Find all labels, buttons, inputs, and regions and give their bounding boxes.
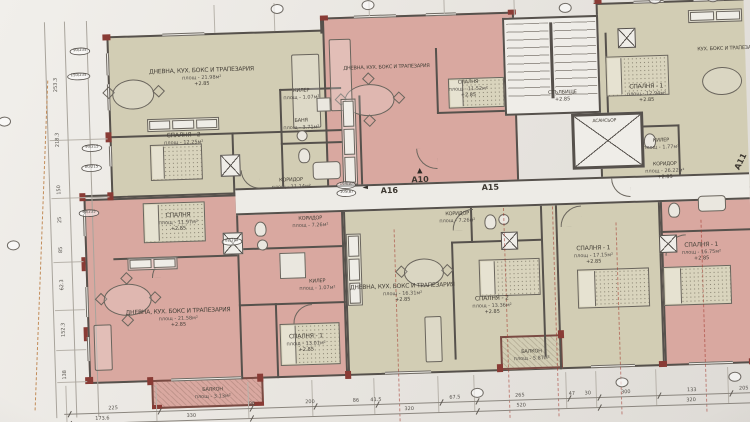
floor-plan-drawing: ДНЕВНА, КУХ. БОКС И ТРАПЕЗАРИЯ площ - 21…	[0, 0, 750, 422]
extension-line	[595, 371, 597, 407]
extension-line	[727, 367, 729, 403]
room-label-corridor-a15: КОРИДОР площ - 7.26м²	[439, 210, 476, 224]
room-label-closet-bc: КИЛЕР площ - 1.07м²	[299, 278, 336, 292]
room-label-elevator: АСАНСЬОР	[592, 118, 616, 125]
dimension-number: 520	[516, 402, 526, 408]
floor-plan-photo: ДНЕВНА, КУХ. БОКС И ТРАПЕЗАРИЯ площ - 21…	[0, 0, 750, 422]
grid-bubble	[728, 372, 741, 382]
door-tag: 105(В)	[336, 189, 356, 197]
window-tag: 90/235	[70, 47, 90, 55]
arrow-up-icon: ▲	[417, 166, 423, 174]
extension-line	[443, 0, 445, 14]
window-tag: 90/235	[79, 209, 99, 217]
grid-bubble	[361, 0, 374, 10]
masonry-accent	[659, 361, 667, 367]
kitchen-counter-icon	[127, 256, 177, 271]
window	[109, 146, 113, 166]
toilet-icon	[484, 214, 496, 229]
apartment-label-a15: А15	[482, 183, 500, 193]
dimension-number: 152.3	[60, 323, 66, 338]
room-label-bedroom1-a15: СПАЛНЯ - 1 площ - 17.15м² +2.85	[574, 244, 614, 266]
window	[591, 364, 635, 368]
stair-flight-left	[506, 22, 550, 99]
window	[385, 370, 431, 374]
extension-line	[593, 0, 594, 3]
vent-shaft	[659, 235, 678, 254]
bed-icon	[663, 265, 732, 306]
dimension-number: 30	[585, 390, 592, 396]
dimension-number: 133	[687, 387, 697, 393]
stair-flight-right	[553, 21, 597, 98]
bathtub-icon	[698, 195, 726, 212]
masonry-accent	[257, 374, 263, 382]
window-tag: 90/215	[82, 144, 102, 152]
apartment-label-a16: А16	[381, 186, 399, 196]
apartment-label-a10: А10	[411, 175, 429, 185]
dimension-number: 200	[305, 399, 315, 405]
extension-line	[213, 5, 215, 33]
dimension-number: 300	[621, 389, 631, 395]
extension-line	[513, 0, 515, 16]
extension-line	[57, 381, 87, 383]
dimension-number: 225	[108, 405, 118, 411]
room-label-living-a15: ДНЕВНА, КУХ. БОКС И ТРАПЕЗАРИЯ площ - 16…	[350, 281, 455, 305]
room-label-closet-tr: КИЛЕР площ - 1.77м²	[643, 137, 680, 151]
sofa-icon	[424, 316, 442, 363]
room-label-bedroom-bl: СПАЛНЯ площ - 11.97м² +2.85	[158, 211, 198, 233]
grid-bubble	[615, 377, 628, 387]
masonry-accent	[81, 257, 85, 271]
room-label-closet-tl: КИЛЕР площ - 1.07м²	[283, 87, 320, 101]
window-tag: 82/202	[222, 238, 242, 246]
kitchen-counter-icon	[147, 117, 219, 132]
room-label-corridor-bc: КОРИДОР площ - 7.26м²	[292, 215, 329, 229]
dimension-number: 41.5	[370, 397, 381, 403]
room-label-main-corridor: КОРИДОР площ - 26.22м² +2.85	[645, 161, 685, 182]
kitchen-counter-icon	[340, 99, 358, 185]
dimension-number: 205	[739, 385, 749, 391]
masonry-accent	[254, 402, 264, 406]
room-label-bedroom-tc: СПАЛНЯ площ - 11.52м² +2.85	[448, 79, 488, 100]
grid-bubble	[0, 116, 11, 126]
vent-shaft	[617, 28, 636, 49]
toilet-icon	[254, 221, 266, 236]
grid-bubble	[270, 4, 283, 14]
extension-line	[565, 372, 567, 408]
dimension-number: 265	[515, 392, 525, 398]
kitchen-counter-icon	[688, 8, 742, 23]
dimension-number: 253.3	[53, 78, 59, 93]
room-label-bath-tl: БАНЯ площ - 3.71м²	[283, 117, 320, 131]
dimension-number: 320	[404, 406, 414, 412]
room-label-balcony-bl: БАЛКОН площ - 3.13м²	[194, 386, 231, 400]
bathtub-icon	[312, 161, 341, 180]
grid-bubble	[471, 388, 484, 398]
room-label-balcony-a15: БАЛКОН площ - 5.87м²	[513, 348, 550, 362]
masonry-accent	[147, 377, 153, 385]
window	[83, 214, 87, 236]
dimension-number: 173.6	[95, 415, 110, 421]
window	[106, 53, 110, 75]
masonry-accent	[558, 330, 564, 338]
window	[689, 361, 733, 365]
masonry-accent	[105, 132, 111, 142]
dimension-number: 25	[57, 217, 63, 224]
masonry-accent	[593, 0, 601, 4]
shower-icon	[279, 252, 306, 279]
sofa-icon	[93, 324, 112, 371]
grid-bubble	[559, 3, 572, 13]
dimension-number: 150	[56, 185, 62, 195]
window-tag: 80/215	[81, 164, 101, 172]
dimension-number: 330	[186, 413, 196, 419]
extension-line	[55, 309, 85, 311]
bed-icon	[479, 258, 541, 297]
dimension-number: 62.3	[59, 279, 65, 290]
arrow-left-icon: ◄	[362, 183, 368, 191]
room-label-living-tl: ДНЕВНА, КУХ. БОКС И ТРАПЕЗАРИЯ площ - 21…	[149, 65, 254, 89]
room-label-bedroom-bc: СПАЛНЯ - 1 площ - 13.01м² +2.85	[286, 332, 326, 354]
toilet-icon	[298, 148, 310, 163]
extension-line	[437, 376, 439, 412]
extension-line	[53, 261, 83, 263]
door-tag: 104(В)	[336, 181, 356, 189]
masonry-accent	[345, 371, 351, 379]
dimension-number: 67.5	[449, 394, 460, 400]
toilet-icon	[668, 202, 680, 217]
room-label-living-bl: ДНЕВНА, КУХ. БОКС И ТРАПЕЗАРИЯ площ - 21…	[126, 306, 231, 330]
grid-bubble	[7, 240, 20, 250]
dimension-number: 86	[353, 398, 360, 404]
vent-shaft	[220, 154, 241, 177]
masonry-accent	[102, 34, 110, 40]
extension-line	[56, 349, 86, 351]
margin-dashed-line	[35, 81, 49, 411]
room-label-bedroom-right: СПАЛНЯ - 1 площ - 16.75м² +2.85	[681, 241, 721, 263]
extension-line	[655, 369, 657, 405]
dimension-number: 320	[686, 397, 696, 403]
masonry-accent	[497, 364, 503, 372]
masonry-accent	[320, 15, 328, 20]
window-tag: 150/235	[67, 72, 90, 80]
dimension-number: 85	[58, 247, 64, 254]
dimension-number: 138	[62, 370, 68, 380]
bed-icon	[577, 267, 650, 308]
room-label-staircase: СТЪЛБИЩЕ +2.85	[548, 89, 577, 103]
bed-icon	[150, 143, 203, 181]
dimension-number: 218.3	[54, 133, 60, 148]
room-label-corridor-tl: КОРИДОР площ - 11.14м²	[271, 177, 311, 191]
room-label-bedroom-tl: СПАЛНЯ - 2 площ - 12.25м²	[164, 131, 204, 147]
room-label-bedroom2-a15: СПАЛНЯ - 2 площ - 13.36м² +2.85	[472, 294, 512, 316]
room-label-bedroom-tr: СПАЛНЯ - 1 площ - 12.94м² +2.85	[626, 82, 666, 104]
grid-line	[64, 22, 77, 418]
